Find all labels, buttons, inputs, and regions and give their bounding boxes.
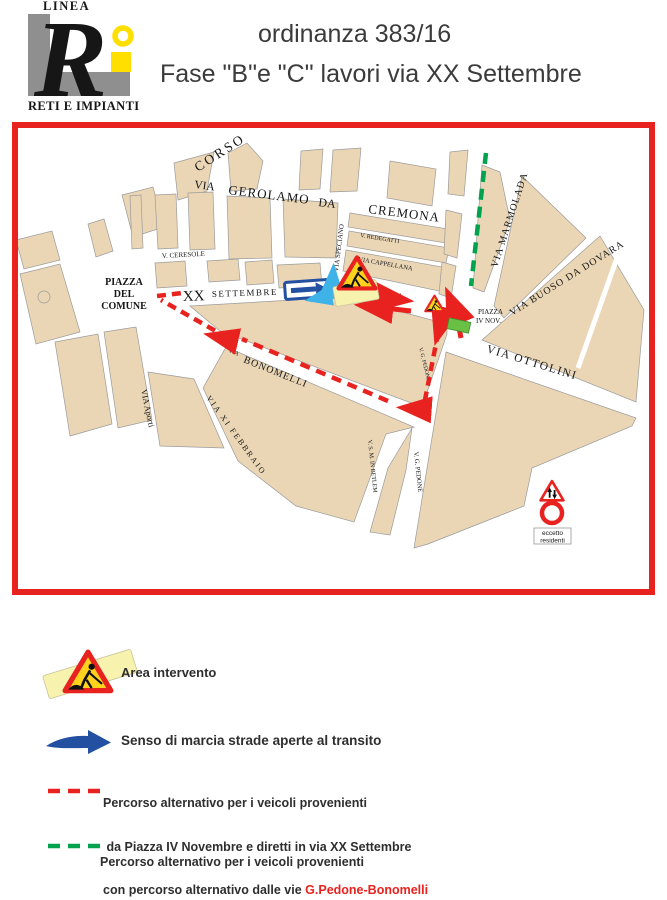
building-block: [444, 210, 462, 258]
legend-direction-icon: [44, 729, 114, 757]
legend-red-dash-icon: [46, 786, 108, 796]
building-block: [245, 260, 274, 285]
building-block: [155, 261, 187, 288]
piazza-fountain-dot: [38, 291, 50, 303]
city-map: CORSO VIA GEROLAMO DA CREMONA V. CERESOL…: [18, 128, 649, 589]
building-block: [439, 262, 456, 298]
blue-arrow-icon: [46, 730, 111, 754]
piazza-comune-label: DEL: [114, 289, 135, 300]
roadworks-sign-small-icon: [425, 296, 443, 312]
building-block: [88, 219, 113, 257]
street-label: VIA: [194, 179, 216, 193]
page-title-line1: ordinanza 383/16: [258, 20, 451, 49]
street-label: V. G. PEDONE: [412, 451, 423, 492]
piazza-iv-label: PIAZZA: [478, 308, 503, 316]
two-way-traffic-sign-icon: [541, 481, 564, 500]
building-block: [330, 148, 361, 192]
building-block: [207, 259, 240, 282]
building-block: [155, 194, 178, 249]
logo-i-ring-icon: [115, 28, 131, 44]
company-logo: LINEA R RETI E IMPIANTI: [28, 0, 170, 114]
logo-bottom-text: RETI E IMPIANTI: [28, 99, 140, 113]
piazza-comune-label: PIAZZA: [105, 277, 144, 288]
logo-i-dot-icon: [111, 52, 131, 72]
exception-plate-text: residenti: [540, 538, 565, 545]
building-block: [55, 334, 112, 436]
legend-direction-label: Senso di marcia strade aperte al transit…: [121, 733, 381, 748]
no-entry-sign-icon: [542, 503, 562, 523]
piazza-comune-label: COMUNE: [101, 301, 147, 312]
map-red-border: CORSO VIA GEROLAMO DA CREMONA V. CERESOL…: [12, 122, 655, 595]
street-label: V. CERESOLE: [162, 250, 205, 260]
street-label: XX: [183, 288, 205, 305]
legend-red-line1: Percorso alternativo per i veicoli prove…: [103, 796, 428, 811]
building-block: [448, 150, 468, 196]
logo-letter-r: R: [33, 0, 107, 114]
building-block: [130, 195, 143, 249]
page-title-line2: Fase "B"e "C" lavori via XX Settembre: [160, 60, 582, 89]
building-block: [188, 192, 215, 250]
piazza-iv-marker: [447, 318, 471, 333]
building-block: [387, 161, 436, 206]
building-block: [20, 264, 80, 344]
street-label: SETTEMBRE: [212, 287, 278, 299]
building-block: [227, 196, 272, 259]
page: LINEA R RETI E IMPIANTI ordinanza 383/16…: [0, 0, 667, 900]
building-block: [18, 231, 60, 269]
exception-plate-text: eccetto: [542, 530, 563, 537]
street-label: DA: [318, 195, 337, 211]
legend-green-line1: Percorso alternativo per i veicoli prove…: [100, 855, 521, 870]
legend-area-label: Area intervento: [121, 665, 216, 680]
building-block: [299, 149, 323, 190]
piazza-iv-label: IV NOV.: [476, 317, 501, 325]
residents-exception-signs: eccetto residenti: [534, 481, 571, 544]
legend-green-dash-icon: [46, 841, 108, 851]
legend-green-route-text: Percorso alternativo per i veicoli prove…: [100, 826, 521, 900]
